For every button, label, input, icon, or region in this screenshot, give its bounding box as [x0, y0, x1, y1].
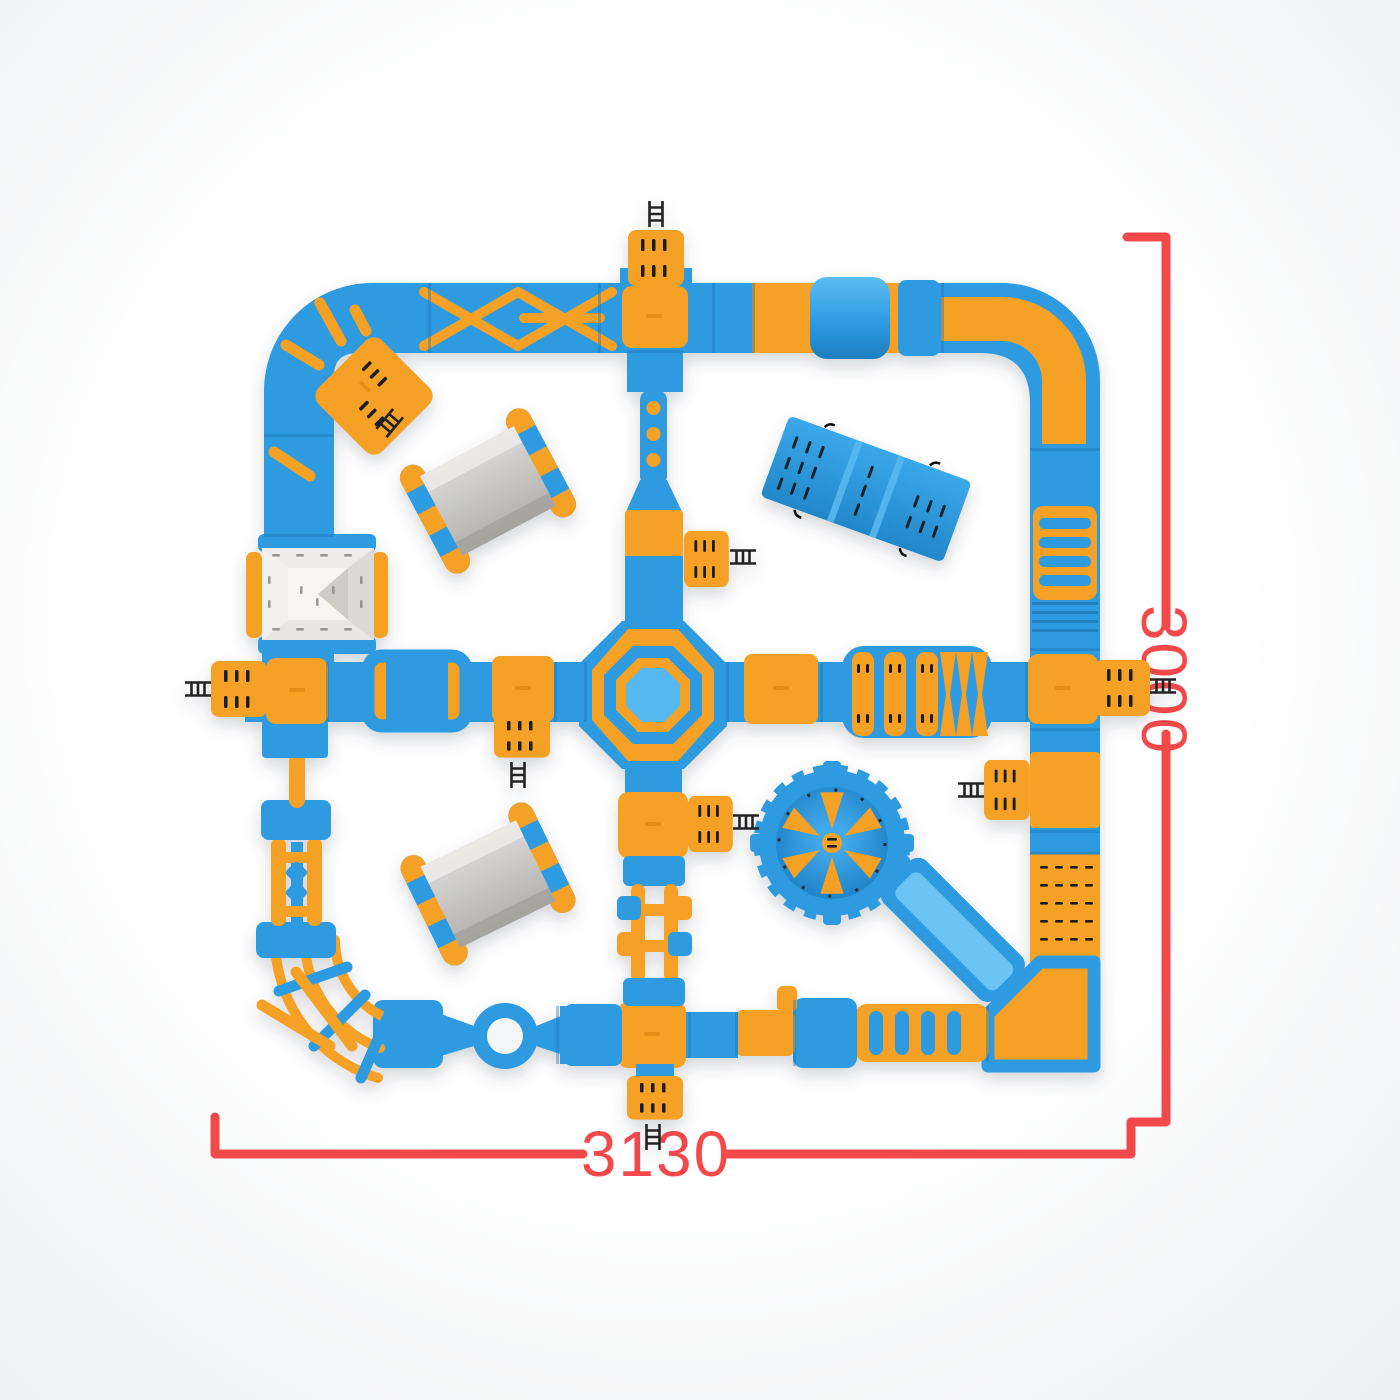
climbing-pyramid-platform [246, 534, 388, 654]
junction-bottom-seam [644, 1032, 660, 1036]
orange-connector-bottom [735, 1010, 795, 1056]
climbing-wall [1030, 854, 1100, 968]
orange-pole [289, 752, 305, 808]
accordion-obstacle [842, 646, 992, 738]
entry-platform-right-lower [984, 760, 1030, 820]
ladder-obstacle-right [1033, 506, 1097, 600]
junction-left-seam [289, 688, 305, 692]
bridge-anchor-bar [256, 922, 336, 958]
dimension-width-label: 3130 [581, 1118, 731, 1190]
floor-plan: 3130 3000 [0, 0, 1400, 1400]
bottom-arm-east [684, 1012, 738, 1058]
tunnel-cylinder [810, 277, 890, 359]
junction-right-seam [1055, 686, 1071, 690]
entry-platform-hub-south [688, 796, 733, 852]
entry-platform-bottom [627, 1076, 683, 1120]
orange-segment-east-seam [773, 686, 789, 690]
junction-top-seam [646, 314, 662, 318]
junction-left-south-arm [262, 720, 328, 758]
ring-walkway [373, 1000, 622, 1069]
entry-platform-hub-north [684, 531, 729, 587]
top-connector [898, 280, 940, 356]
orange-segment-west-seam [515, 686, 531, 690]
park-plan-svg: 3130 3000 [0, 0, 1400, 1400]
entry-platform-left [211, 661, 267, 717]
orange-band-top [752, 283, 798, 353]
ladder-bridge-horizontal [855, 1004, 989, 1062]
entry-platform-top [628, 230, 684, 286]
entry-platform-right [1094, 660, 1150, 716]
entry-platform-mid-west [494, 714, 550, 758]
bottom-block-east [793, 998, 857, 1068]
ladder-bridge-vertical-left [271, 838, 322, 926]
orange-block-right [1030, 752, 1100, 828]
